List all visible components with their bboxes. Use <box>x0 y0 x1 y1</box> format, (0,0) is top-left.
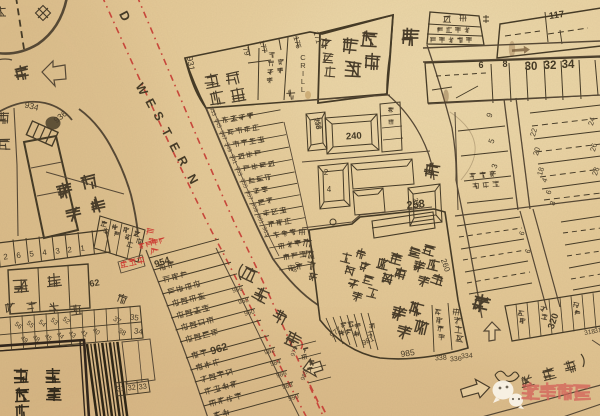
svg-text:117: 117 <box>548 9 565 22</box>
svg-text:32: 32 <box>127 383 136 393</box>
svg-text:316: 316 <box>594 326 600 335</box>
svg-text:2: 2 <box>324 168 329 177</box>
svg-text:258: 258 <box>406 198 426 212</box>
svg-text:34: 34 <box>562 59 575 71</box>
svg-text:985: 985 <box>400 347 416 359</box>
svg-text:L: L <box>301 85 305 94</box>
svg-text:240: 240 <box>346 130 363 142</box>
svg-text:334: 334 <box>461 353 473 361</box>
svg-text:4: 4 <box>327 185 332 194</box>
svg-text:338: 338 <box>435 355 447 363</box>
svg-text:33: 33 <box>138 382 147 392</box>
svg-text:34: 34 <box>133 326 144 336</box>
svg-text:6: 6 <box>478 60 483 70</box>
svg-text:32: 32 <box>544 60 557 72</box>
svg-text:35: 35 <box>129 312 140 322</box>
svg-text:8: 8 <box>502 59 507 69</box>
svg-text:30: 30 <box>525 61 538 73</box>
svg-text:31: 31 <box>116 384 125 394</box>
svg-text:62: 62 <box>89 277 101 289</box>
